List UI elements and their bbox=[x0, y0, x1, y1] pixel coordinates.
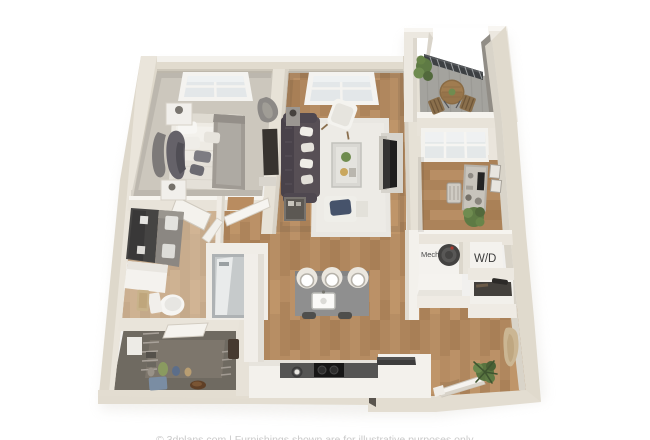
svg-text:W/D: W/D bbox=[474, 253, 496, 265]
svg-text:© 3dplans.com | Furnishings: © 3dplans.com | Furnishings shown are fo… bbox=[156, 434, 474, 440]
